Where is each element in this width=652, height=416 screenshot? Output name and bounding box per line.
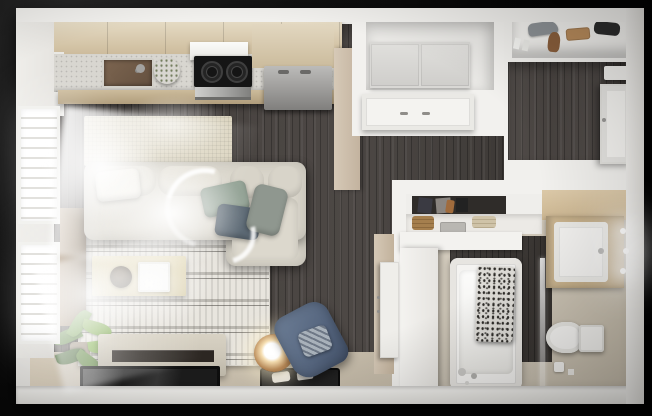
door-handle xyxy=(422,112,430,115)
tan-clutch xyxy=(566,27,591,41)
bathroom-door xyxy=(380,262,399,358)
pillow-cream xyxy=(95,168,142,202)
wall-bottom xyxy=(16,386,644,404)
fridge-handle xyxy=(278,70,289,74)
fridge-handle xyxy=(300,70,311,74)
wall-right xyxy=(626,8,644,404)
closet-doors-top xyxy=(362,94,474,130)
window-sideboard xyxy=(60,208,86,326)
shower-curtain xyxy=(475,265,516,342)
refrigerator xyxy=(264,66,332,110)
cabinet-door xyxy=(421,44,469,86)
runner-rug xyxy=(84,116,232,166)
kitchen-sink xyxy=(102,58,154,88)
table-bowl xyxy=(110,266,132,288)
hanging-clothes xyxy=(417,197,432,213)
bench-shelf xyxy=(112,350,214,362)
hanging-clothes xyxy=(456,198,468,212)
burner xyxy=(201,61,223,83)
faucet-icon xyxy=(136,64,145,73)
faucet-icon xyxy=(598,248,604,254)
woven-basket xyxy=(412,216,434,230)
partition-wall xyxy=(400,248,438,390)
black-bag xyxy=(593,21,620,37)
cabinet-door xyxy=(371,44,419,86)
door-handle xyxy=(377,296,380,299)
fridge-cabinet-panel xyxy=(252,24,334,68)
floorplan-render xyxy=(0,0,652,416)
table-tray xyxy=(138,262,170,292)
oven xyxy=(195,87,251,100)
burner xyxy=(226,61,248,83)
window-with-blinds xyxy=(18,106,60,224)
window-with-blinds xyxy=(18,242,60,344)
toilet-paper xyxy=(554,362,564,372)
door-handle xyxy=(602,118,606,122)
door-mat xyxy=(604,66,628,80)
shower-glass-panel xyxy=(540,258,545,388)
toilet-tank xyxy=(579,325,604,352)
green-fruit-bowl xyxy=(154,58,180,84)
bath-taps xyxy=(458,368,466,376)
door-handle xyxy=(400,112,408,115)
woven-basket xyxy=(472,216,496,228)
wall-top xyxy=(16,8,644,22)
